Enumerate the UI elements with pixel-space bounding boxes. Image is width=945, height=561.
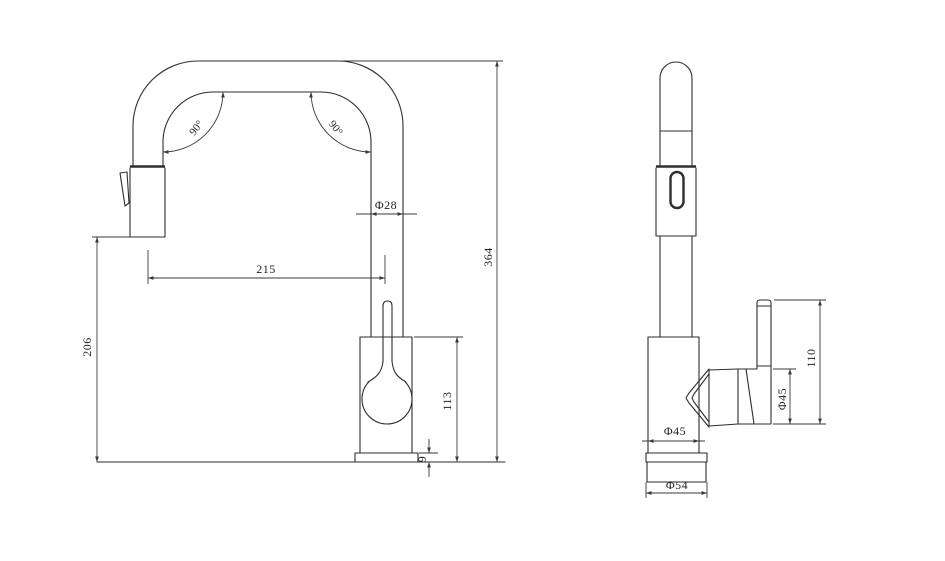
spout-outline bbox=[133, 61, 403, 337]
technical-drawing-sheet: 206 215 Φ28 364 113 9 90 bbox=[0, 0, 945, 561]
spray-clip bbox=[120, 172, 129, 206]
front-view: 206 215 Φ28 364 113 9 90 bbox=[80, 61, 505, 477]
dim-handle-height: 110 bbox=[804, 348, 818, 367]
dim-outlet-height: 206 bbox=[80, 337, 94, 357]
dim-spout-tube-diameter: Φ28 bbox=[375, 198, 397, 212]
dim-base-diameter: Φ54 bbox=[666, 478, 688, 492]
dim-base-plate-thickness: 9 bbox=[415, 456, 429, 463]
side-dimensions: Φ45 Φ54 Φ45 110 bbox=[642, 300, 826, 498]
base-plate-front bbox=[355, 453, 418, 462]
side-view: Φ45 Φ54 Φ45 110 bbox=[642, 62, 826, 498]
dim-left-bend-angle: 90° bbox=[187, 118, 206, 138]
hose-neck bbox=[383, 301, 392, 362]
dim-spout-reach: 215 bbox=[256, 262, 276, 276]
handle-lever bbox=[757, 300, 771, 369]
faucet-body-front bbox=[355, 301, 418, 462]
sprayer-button-slot bbox=[671, 172, 684, 208]
spout-column-side bbox=[656, 62, 696, 337]
dim-body-height: 113 bbox=[440, 391, 454, 410]
faucet-dimension-drawing: 206 215 Φ28 364 113 9 90 bbox=[0, 0, 945, 561]
dim-handle-diameter: Φ45 bbox=[775, 388, 789, 410]
faucet-body-side bbox=[646, 337, 707, 482]
dim-overall-height: 364 bbox=[481, 247, 495, 267]
spray-head bbox=[120, 167, 165, 238]
front-dimensions: 206 215 Φ28 364 113 9 90 bbox=[80, 61, 503, 477]
dim-body-diameter: Φ45 bbox=[664, 424, 686, 438]
